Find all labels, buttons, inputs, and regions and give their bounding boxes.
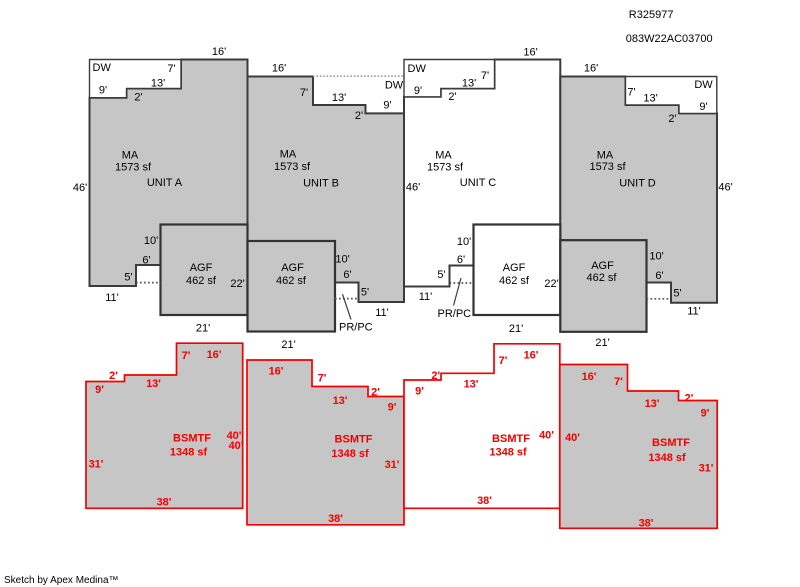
- svg-text:16': 16': [582, 371, 597, 383]
- svg-text:2': 2': [668, 113, 676, 125]
- svg-text:2': 2': [448, 91, 456, 103]
- svg-text:R325977: R325977: [629, 9, 674, 21]
- svg-text:PR/PC: PR/PC: [339, 322, 373, 334]
- svg-text:7': 7': [182, 350, 191, 362]
- svg-text:9': 9': [388, 402, 397, 414]
- svg-text:DW: DW: [385, 80, 404, 92]
- svg-text:AGF: AGF: [281, 262, 304, 274]
- svg-text:31': 31': [699, 463, 714, 475]
- svg-text:2': 2': [371, 387, 380, 399]
- svg-text:1348 sf: 1348 sf: [170, 447, 208, 459]
- svg-text:38': 38': [328, 513, 343, 525]
- svg-text:9': 9': [383, 100, 391, 112]
- svg-text:2': 2': [134, 92, 142, 104]
- svg-text:7': 7': [499, 355, 508, 367]
- svg-text:5': 5': [437, 269, 445, 281]
- svg-text:2': 2': [431, 370, 440, 382]
- svg-text:31': 31': [385, 459, 400, 471]
- svg-text:6': 6': [655, 270, 663, 282]
- svg-text:DW: DW: [93, 62, 112, 74]
- svg-text:AGF: AGF: [503, 262, 526, 274]
- svg-text:BSMTF: BSMTF: [335, 434, 373, 446]
- svg-text:16': 16': [523, 47, 537, 59]
- svg-text:UNIT D: UNIT D: [619, 178, 656, 190]
- svg-text:9': 9': [95, 384, 104, 396]
- svg-text:22': 22': [230, 278, 244, 290]
- svg-text:9': 9': [701, 408, 710, 420]
- svg-text:5': 5': [673, 288, 681, 300]
- svg-text:MA: MA: [435, 150, 452, 162]
- svg-text:2': 2': [685, 393, 694, 405]
- svg-text:38': 38': [639, 518, 654, 530]
- svg-text:10': 10': [335, 254, 349, 266]
- svg-text:21': 21': [196, 323, 210, 335]
- svg-text:DW: DW: [694, 79, 713, 91]
- svg-text:MA: MA: [280, 149, 297, 161]
- svg-text:13': 13': [643, 93, 657, 105]
- svg-text:6': 6': [457, 254, 465, 266]
- svg-text:7': 7': [481, 70, 489, 82]
- svg-text:21': 21': [281, 339, 295, 351]
- svg-text:462 sf: 462 sf: [276, 275, 307, 287]
- svg-text:7': 7': [614, 376, 623, 388]
- svg-text:46': 46': [73, 182, 87, 194]
- svg-text:1573 sf: 1573 sf: [274, 161, 311, 173]
- svg-text:462 sf: 462 sf: [186, 275, 217, 287]
- svg-text:11': 11': [105, 292, 119, 304]
- svg-text:46': 46': [718, 182, 732, 194]
- svg-text:5': 5': [124, 272, 132, 284]
- svg-text:6': 6': [142, 255, 150, 267]
- svg-text:31': 31': [89, 459, 104, 471]
- svg-text:16': 16': [269, 366, 284, 378]
- svg-text:462 sf: 462 sf: [587, 272, 618, 284]
- svg-text:13': 13': [645, 398, 660, 410]
- svg-text:BSMTF: BSMTF: [652, 437, 690, 449]
- svg-text:21': 21': [509, 323, 523, 335]
- svg-text:16': 16': [524, 350, 539, 362]
- svg-text:PR/PC: PR/PC: [438, 308, 472, 320]
- svg-text:38': 38': [477, 495, 492, 507]
- svg-text:13': 13': [146, 378, 161, 390]
- svg-text:40': 40': [539, 430, 554, 442]
- svg-text:5': 5': [361, 287, 369, 299]
- svg-text:1348 sf: 1348 sf: [648, 452, 686, 464]
- svg-text:AGF: AGF: [591, 260, 614, 272]
- svg-text:2': 2': [355, 110, 363, 122]
- svg-text:BSMTF: BSMTF: [173, 433, 211, 445]
- svg-text:16': 16': [584, 63, 598, 75]
- svg-text:16': 16': [212, 46, 226, 58]
- svg-text:10': 10': [457, 236, 471, 248]
- svg-text:9': 9': [699, 101, 707, 113]
- svg-text:9': 9': [415, 386, 424, 398]
- svg-text:10': 10': [649, 251, 663, 263]
- svg-text:2': 2': [109, 370, 118, 382]
- svg-text:21': 21': [595, 337, 609, 349]
- svg-text:40': 40': [565, 432, 580, 444]
- svg-text:46': 46': [406, 182, 420, 194]
- svg-text:9': 9': [99, 85, 107, 97]
- svg-text:11': 11': [375, 307, 389, 319]
- svg-text:AGF: AGF: [190, 262, 213, 274]
- svg-text:7': 7': [167, 63, 175, 75]
- svg-text:DW: DW: [408, 63, 427, 75]
- svg-text:MA: MA: [122, 150, 139, 162]
- svg-text:UNIT B: UNIT B: [303, 178, 339, 190]
- svg-text:22': 22': [544, 278, 558, 290]
- svg-text:7': 7': [318, 373, 327, 385]
- svg-text:10': 10': [144, 235, 158, 247]
- svg-text:083W22AC03700: 083W22AC03700: [626, 33, 713, 45]
- svg-text:UNIT C: UNIT C: [460, 177, 497, 189]
- svg-text:1348 sf: 1348 sf: [489, 447, 527, 459]
- svg-text:7': 7': [300, 87, 308, 99]
- svg-text:13': 13': [151, 78, 165, 90]
- svg-text:40': 40': [229, 440, 244, 452]
- svg-text:1348 sf: 1348 sf: [331, 448, 369, 460]
- svg-text:Sketch by Apex Medina™: Sketch by Apex Medina™: [4, 575, 119, 586]
- svg-text:MA: MA: [597, 150, 614, 162]
- svg-text:7': 7': [627, 87, 635, 99]
- svg-text:38': 38': [157, 496, 172, 508]
- svg-text:13': 13': [464, 379, 479, 391]
- svg-text:9': 9': [414, 85, 422, 97]
- svg-text:462 sf: 462 sf: [499, 275, 530, 287]
- svg-text:6': 6': [343, 269, 351, 281]
- svg-text:1573 sf: 1573 sf: [115, 162, 152, 174]
- svg-text:BSMTF: BSMTF: [492, 433, 530, 445]
- svg-text:11': 11': [687, 306, 701, 318]
- svg-text:UNIT A: UNIT A: [147, 177, 183, 189]
- svg-text:1573 sf: 1573 sf: [427, 162, 464, 174]
- svg-text:13': 13': [462, 78, 476, 90]
- svg-text:16': 16': [272, 63, 286, 75]
- svg-text:16': 16': [207, 349, 222, 361]
- svg-text:13': 13': [332, 92, 346, 104]
- svg-text:1573 sf: 1573 sf: [589, 161, 626, 173]
- svg-text:13': 13': [333, 395, 348, 407]
- svg-text:11': 11': [419, 291, 433, 303]
